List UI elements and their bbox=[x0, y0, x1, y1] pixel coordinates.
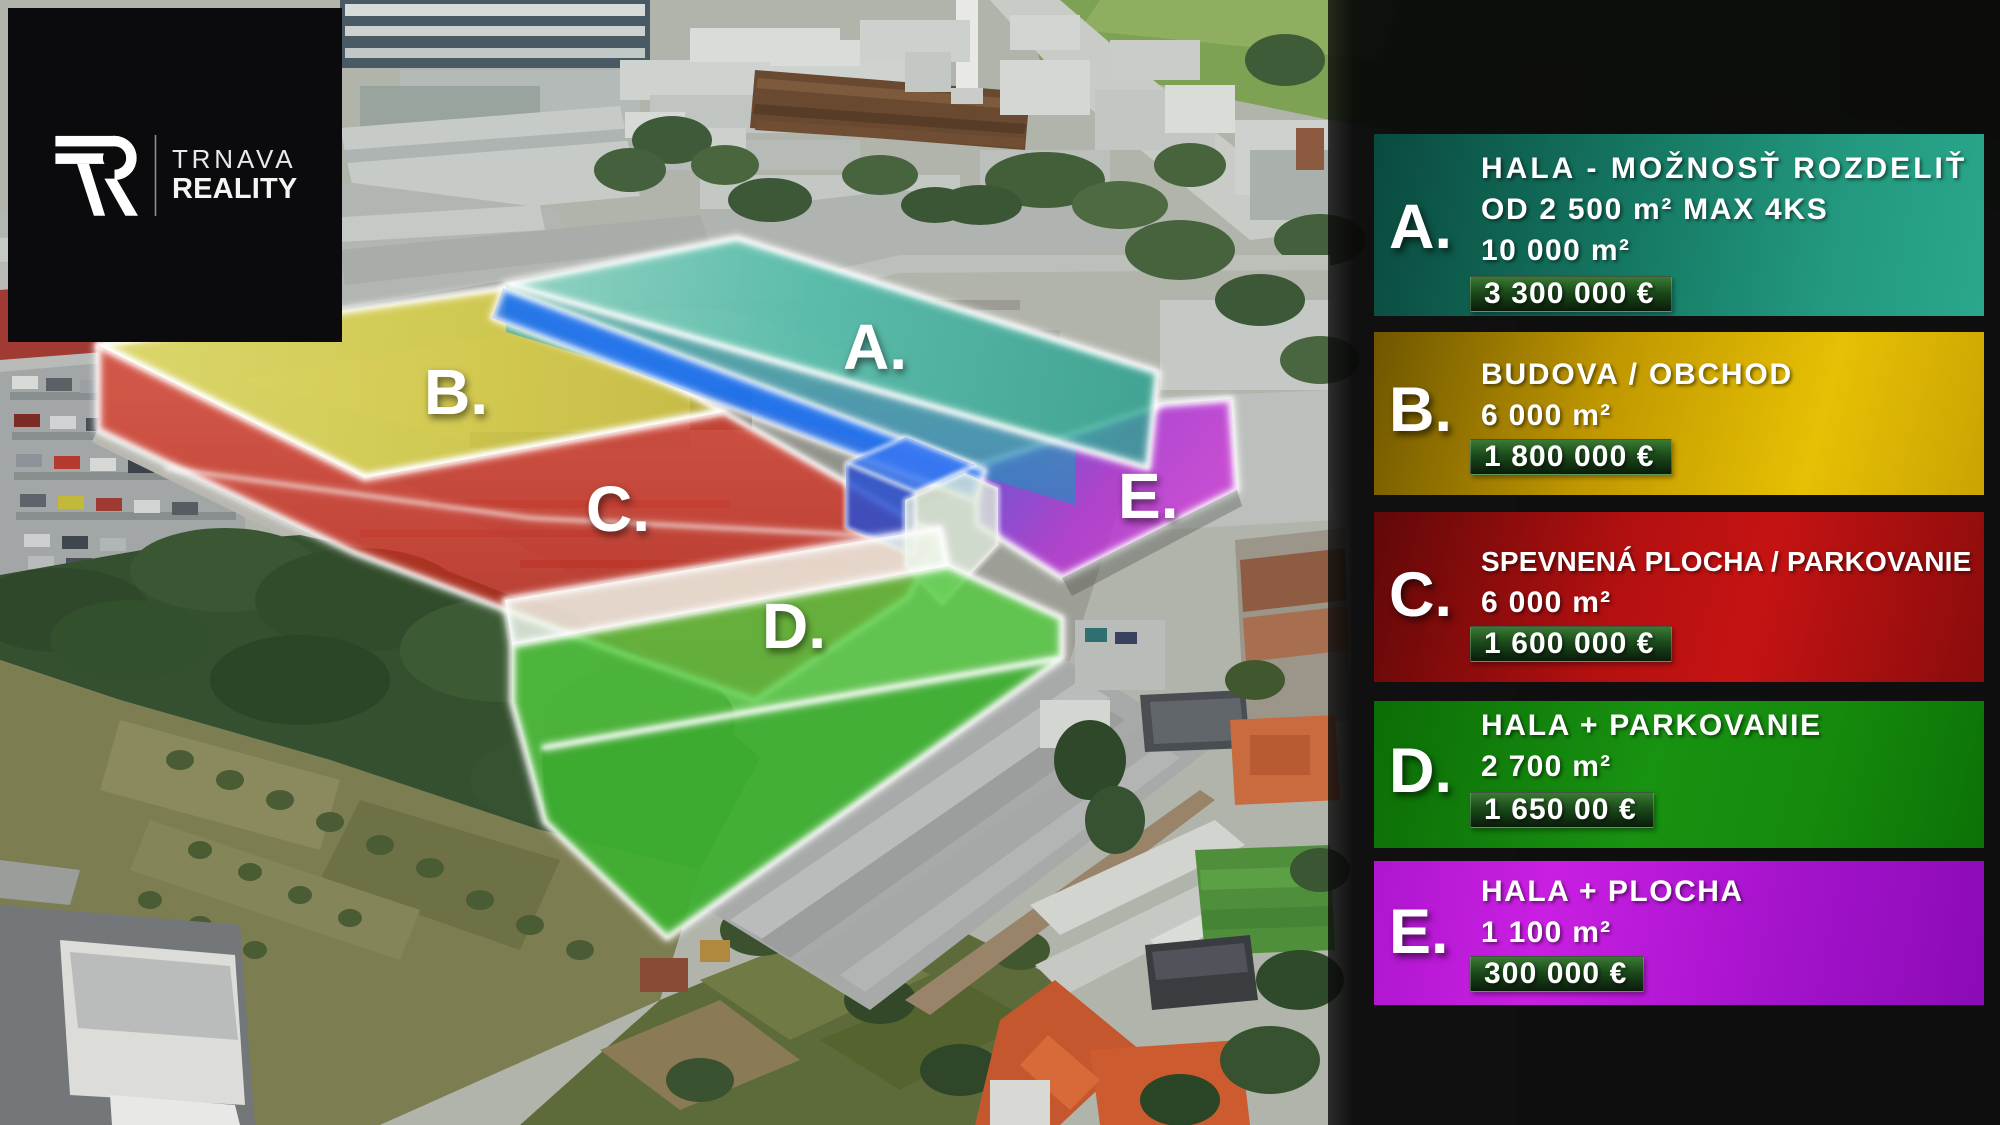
svg-text:C.: C. bbox=[586, 473, 650, 545]
svg-text:B.: B. bbox=[424, 356, 488, 428]
svg-text:A.: A. bbox=[843, 311, 907, 383]
svg-text:D.: D. bbox=[762, 590, 826, 662]
svg-text:E.: E. bbox=[1118, 460, 1178, 532]
